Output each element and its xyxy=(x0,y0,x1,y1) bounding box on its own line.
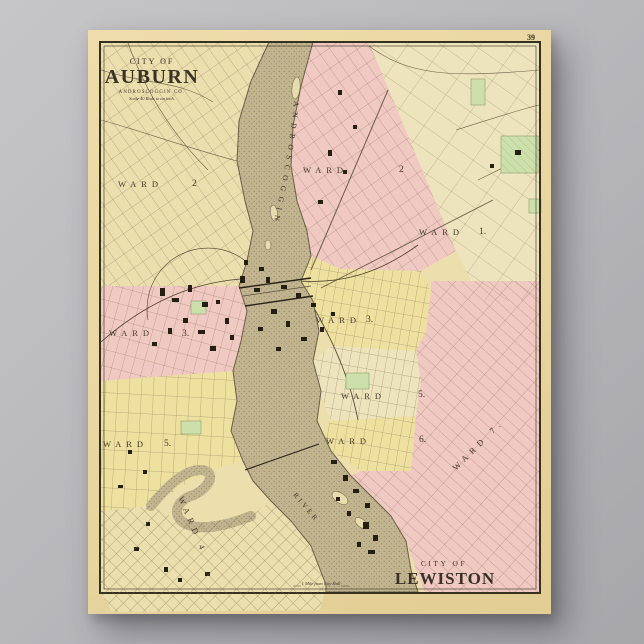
ward-number-auburn-2: 2 xyxy=(192,179,197,189)
ward-number-auburn-3: 3. xyxy=(182,329,189,339)
margin-note: 1 Mile from City Hall xyxy=(302,581,342,586)
ward-label-lewiston-1: WARD xyxy=(419,227,464,237)
lewiston-title-prefix: CITY OF xyxy=(421,559,467,568)
map-canvas: 39 CITY OF AUBURN ANDROSCOGGIN CO. Scale… xyxy=(88,30,551,614)
ward-label-auburn-2: WARD xyxy=(118,179,163,189)
ward-label-lewiston-3: WARD xyxy=(316,315,361,325)
ward-label-lewiston-6: WARD xyxy=(326,436,371,446)
ward-number-lewiston-3: 3. xyxy=(366,315,373,325)
ward-number-lewiston-5: 5. xyxy=(418,390,425,400)
city-park xyxy=(346,373,369,389)
auburn-title: AUBURN xyxy=(105,66,200,88)
ward-number-auburn-5: 5. xyxy=(164,439,171,449)
ward-label-auburn-5: WARD xyxy=(103,439,148,449)
page-number: 39 xyxy=(527,33,535,42)
ward-label-lewiston-2: WARD xyxy=(303,165,348,175)
map-poster: 39 CITY OF AUBURN ANDROSCOGGIN CO. Scale… xyxy=(88,30,551,614)
ward-number-lewiston-2: 2 xyxy=(399,165,404,175)
product-backdrop: 39 CITY OF AUBURN ANDROSCOGGIN CO. Scale… xyxy=(0,0,644,644)
auburn-title-prefix: CITY OF xyxy=(130,57,175,66)
ward-number-lewiston-6: 6. xyxy=(419,435,426,445)
ward-label-lewiston-5: WARD xyxy=(341,391,386,401)
auburn-county: ANDROSCOGGIN CO. xyxy=(119,90,186,95)
ward-number-lewiston-1: 1. xyxy=(479,227,486,237)
ward-label-auburn-3: WARD xyxy=(109,328,154,338)
auburn-scale-note: Scale 40 Rods to an inch. xyxy=(129,96,175,101)
lewiston-title: LEWISTON xyxy=(395,569,495,588)
